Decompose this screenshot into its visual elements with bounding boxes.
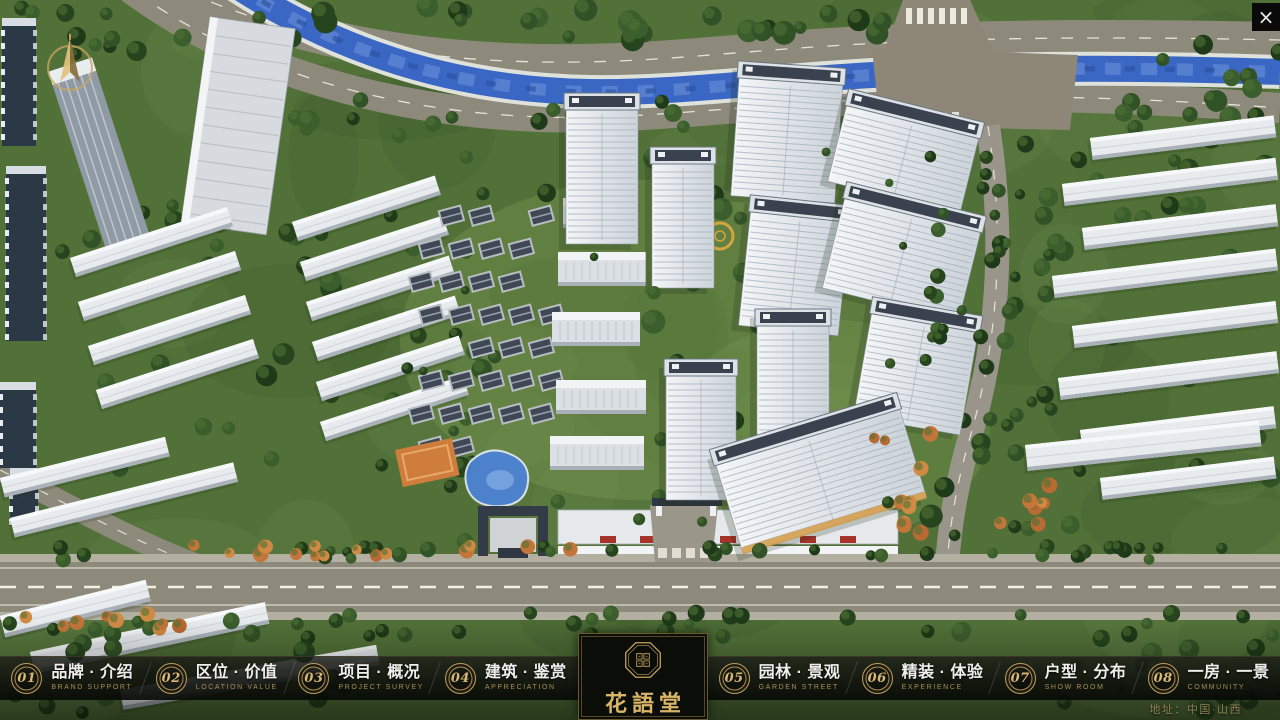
brand-title: 花語堂 xyxy=(600,686,686,718)
nav-number-badge: 06 xyxy=(862,663,893,694)
nav-number-badge: 07 xyxy=(1005,663,1036,694)
nav-item-sublabel: SHOW ROOM xyxy=(1045,684,1127,692)
bottom-nav-right: 05园林 · 景观GARDEN STREET06精装 · 体验EXPERIENC… xyxy=(708,656,1280,700)
nav-number-badge: 01 xyxy=(11,663,42,694)
nav-number-badge: 04 xyxy=(445,663,476,694)
aerial-map-render xyxy=(0,0,1280,720)
nav-item-sublabel: EXPERIENCE xyxy=(902,684,984,692)
nav-item-sublabel: BRAND SUPPORT xyxy=(51,684,133,692)
logo-panel[interactable]: 花語堂 FLOWER LANGUAGE HALL xyxy=(578,633,708,720)
nav-item-03[interactable]: 03项目 · 概况PROJECT SURVEY xyxy=(289,657,434,699)
nav-item-sublabel: APPRECIATION xyxy=(485,684,567,692)
nav-item-label: 园林 · 景观 xyxy=(759,664,841,682)
nav-item-06[interactable]: 06精装 · 体验EXPERIENCE xyxy=(851,657,994,699)
close-button[interactable]: × xyxy=(1252,3,1280,31)
nav-item-05[interactable]: 05园林 · 景观GARDEN STREET xyxy=(708,657,851,699)
nav-item-sublabel: GARDEN STREET xyxy=(759,684,841,692)
nav-number-badge: 03 xyxy=(298,663,329,694)
nav-item-label: 户型 · 分布 xyxy=(1045,664,1127,682)
nav-item-07[interactable]: 07户型 · 分布SHOW ROOM xyxy=(994,657,1137,699)
nav-item-sublabel: PROJECT SURVEY xyxy=(338,684,424,692)
nav-item-label: 精装 · 体验 xyxy=(902,664,984,682)
nav-number-badge: 05 xyxy=(719,663,750,694)
presentation-stage: × 01品牌 · 介绍BRAND SUPPORT02区位 · 价值LOCATIO… xyxy=(0,0,1280,720)
address-label: 地址：中国·山西 xyxy=(1149,701,1242,717)
nav-item-label: 建筑 · 鉴赏 xyxy=(485,664,567,682)
nav-item-08[interactable]: 08一房 · 一景COMMUNITY xyxy=(1137,657,1280,699)
bottom-nav-left: 01品牌 · 介绍BRAND SUPPORT02区位 · 价值LOCATION … xyxy=(0,656,578,700)
nav-item-label: 区位 · 价值 xyxy=(196,664,278,682)
nav-item-04[interactable]: 04建筑 · 鉴赏APPRECIATION xyxy=(434,657,579,699)
nav-item-sublabel: LOCATION VALUE xyxy=(196,684,278,692)
nav-item-01[interactable]: 01品牌 · 介绍BRAND SUPPORT xyxy=(0,657,145,699)
nav-item-label: 项目 · 概况 xyxy=(338,664,424,682)
nav-number-badge: 08 xyxy=(1148,663,1179,694)
compass-icon xyxy=(40,32,100,96)
nav-item-label: 品牌 · 介绍 xyxy=(51,664,133,682)
nav-item-sublabel: COMMUNITY xyxy=(1188,684,1270,692)
nav-item-02[interactable]: 02区位 · 价值LOCATION VALUE xyxy=(145,657,290,699)
nav-item-label: 一房 · 一景 xyxy=(1188,664,1270,682)
nav-number-badge: 02 xyxy=(156,663,187,694)
brand-emblem-icon xyxy=(623,640,663,685)
